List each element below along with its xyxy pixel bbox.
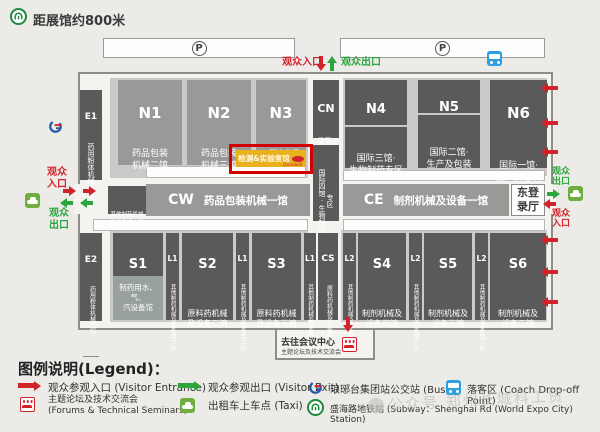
forum-icon: [342, 337, 357, 352]
hall-l2-name: 其他制药机械及设备馆三区: [412, 284, 418, 350]
expo-floorplan-map: 距展馆约800米 P P 观众入口 观众出口 E1 药用粉体机械一馆 E2 药用…: [0, 0, 600, 432]
bus-drop-off-icon: [487, 51, 502, 66]
hall-n5: N5 国际二馆· 工程自动化净化 配套实验室: [418, 80, 480, 113]
hall-cn-bio-zone: 国际四馆·生物制药专区: [313, 145, 339, 221]
entrance-arrow-icon: [541, 121, 558, 125]
hall-n3-id: N3: [256, 99, 306, 122]
hall-e1-id: E1: [80, 109, 102, 122]
hall-s4-name: 制剂机械及 设备四馆: [358, 309, 406, 330]
hall-s2-name: 原料药机械 及设备二馆: [182, 309, 233, 330]
exit-arrow-icon: [547, 192, 560, 196]
east-exit-label: 观众 出口: [552, 167, 570, 188]
legend-forum-icon: [20, 397, 35, 412]
hall-s4: S4 制剂机械及 设备四馆: [358, 233, 406, 320]
west-exit-label: 观众 出口: [49, 208, 69, 231]
hall-n6-id: N6: [490, 99, 547, 122]
hall-n4-id: N4: [345, 99, 407, 117]
legend-taxi-icon: [180, 398, 195, 413]
parking-icon: P: [192, 41, 207, 56]
hall-s3-id: S3: [252, 252, 301, 272]
entrance-arrow-icon: [541, 86, 558, 90]
hall-l1-id: L1: [236, 254, 249, 263]
corridor: [343, 219, 545, 231]
exit-arrow-icon: [60, 201, 73, 205]
exit-arrow-icon: [80, 201, 93, 205]
entrance-arrow-icon: [541, 270, 558, 274]
west-entrance-label: 观众 入口: [47, 167, 67, 190]
exhibitor-logo-text: Goodwill: [283, 163, 302, 168]
hall-n5-id: N5: [418, 99, 480, 115]
hall-s5: S5 制剂机械及 设备三馆: [424, 233, 472, 320]
hall-l2-name: 其他制药机械及设备馆三区: [478, 284, 484, 350]
top-exit-label: 观众出口: [341, 57, 381, 69]
hall-n4-bottom-name: 国际三馆· 生物制药专区: [345, 154, 407, 177]
hall-l1-name: 其他制药机械及设备馆二区: [239, 284, 245, 350]
entrance-arrow-icon: [319, 56, 323, 71]
hall-n2-id: N2: [187, 99, 251, 122]
hall-s1: S1 原料药机械 及设备一馆 制药用水、气、 汽设备馆: [113, 233, 163, 320]
conference-arrow-icon: [346, 317, 350, 332]
entrance-arrow-icon: [541, 300, 558, 304]
entrance-arrow-icon: [543, 202, 556, 206]
hall-cw-side-name: 其他制药机械 及设备馆一区: [108, 212, 146, 227]
hall-n5-bottom-name: 国际二馆· 生产及包装: [418, 148, 480, 171]
legend-coach-icon: [446, 380, 461, 395]
metro-icon: [10, 8, 27, 25]
hall-cw-id: CW: [168, 192, 194, 208]
hall-cw-side: 其他制药机械 及设备馆一区: [108, 186, 146, 214]
legend-bus-label: 琅琊台集团站公交站 (Bus): [330, 381, 449, 396]
hall-s3: S3 原料药机械 及设备三馆: [252, 233, 301, 320]
east-entrance-label: 观众 入口: [552, 209, 570, 230]
hall-s4-id: S4: [358, 252, 406, 272]
hall-cs: CS 原料药机械及设备四馆: [318, 233, 338, 320]
hall-l2: L2 其他制药机械及设备馆三区: [343, 233, 356, 320]
hall-l2-id: L2: [343, 254, 356, 263]
hall-l1-id: L1: [166, 254, 179, 263]
hall-e2-name: 药用粉体机械二馆: [88, 286, 95, 334]
hall-s1-id: S1: [113, 252, 163, 272]
hall-s3-name: 原料药机械 及设备三馆: [252, 309, 301, 330]
hall-n6: N6 国际一馆· 生产及包装: [490, 80, 547, 168]
legend-forum-label-en: (Forums & Technical Seminars): [48, 406, 187, 417]
hall-l2-id: L2: [475, 254, 488, 263]
hall-n4: N4 国际三馆· 工程自动化净化 配套实验室: [345, 80, 407, 125]
hall-n4-lower: 国际三馆· 生物制药专区: [345, 127, 407, 168]
legend-taxi-label: 出租车上车点 (Taxi): [208, 398, 303, 413]
entrance-arrow-icon: [541, 238, 558, 242]
hall-s2-id: S2: [182, 252, 233, 272]
hall-ce: CE 制剂机械及设备一馆: [343, 184, 509, 216]
hall-s5-name: 制剂机械及 设备三馆: [424, 309, 472, 330]
hall-n1-name: 药品包装 机械二馆: [118, 149, 182, 172]
legend-entrance-arrow-icon: [18, 383, 41, 388]
hall-l1: L1 其他制药机械及设备馆二区: [304, 233, 316, 320]
exit-arrow-icon: [330, 56, 334, 71]
entrance-arrow-icon: [83, 189, 96, 193]
legend-bus-stop-logo-icon: [308, 380, 323, 395]
hall-s6: S6 制剂机械及 设备二馆: [490, 233, 546, 320]
hall-s5-id: S5: [424, 252, 472, 272]
parking-strip-west: P: [103, 38, 295, 58]
parking-icon: P: [435, 41, 450, 56]
hall-s6-id: S6: [490, 252, 546, 272]
hall-l1: L1 其他制药机械及设备馆二区: [166, 233, 179, 320]
hall-e2-id: E2: [80, 252, 102, 265]
hall-n5-lower: 国际二馆· 生产及包装: [418, 115, 480, 168]
hall-cw-name: 药品包装机械一馆: [204, 193, 288, 208]
legend-exit-arrow-icon: [178, 383, 201, 388]
taxi-icon: [25, 193, 40, 208]
hall-cn-id: CN: [313, 99, 339, 115]
legend-subway-label: 盛海路地铁站 (Subway：Shenghai Rd (World Expo C…: [330, 402, 600, 425]
hall-l1-id: L1: [304, 254, 316, 263]
hall-s2: S2 原料药机械 及设备二馆: [182, 233, 233, 320]
hall-e1: E1 药用粉体机械一馆: [80, 90, 102, 180]
entrance-arrow-icon: [541, 150, 558, 154]
hall-s1-sub-name: 制药用水、气、 汽设备馆: [113, 276, 163, 320]
highlight-frame: [229, 144, 313, 174]
conference-subtitle: 主题论坛及技术交流会: [281, 347, 341, 356]
hall-cn: CN 国际四馆·工程自动化净化配套实验室: [313, 80, 339, 138]
hall-ce-id: CE: [364, 192, 384, 208]
legend-forum-label-cn: 主题论坛及技术交流会: [48, 395, 138, 406]
east-registration-hall: 东登 录厅: [511, 184, 545, 216]
hall-n1: N1 药品包装 机械二馆: [118, 80, 182, 165]
hall-cs-id: CS: [318, 254, 338, 264]
bus-stop-logo-icon: [48, 119, 63, 134]
hall-ce-name: 制剂机械及设备一馆: [394, 193, 489, 208]
parking-strip-east: P: [340, 38, 545, 58]
hall-s6-name: 制剂机械及 设备二馆: [490, 309, 546, 330]
hall-cw: CW 药品包装机械一馆: [146, 184, 310, 216]
metro-distance-note: 距展馆约800米: [33, 10, 125, 29]
hall-l1: L1 其他制药机械及设备馆二区: [236, 233, 249, 320]
hall-cn-bio-zone-name: 国际四馆·生物制药专区: [318, 166, 334, 236]
hall-l1-name: 其他制药机械及设备馆二区: [169, 284, 175, 350]
hall-n6-name: 国际一馆· 生产及包装: [490, 161, 547, 184]
hall-l2: L2 其他制药机械及设备馆三区: [475, 233, 488, 320]
hall-e2: E2 药用粉体机械二馆 饮片机械馆: [80, 233, 102, 321]
legend-subway-icon: [307, 399, 324, 416]
hall-n1-id: N1: [118, 99, 182, 122]
hall-l2-id: L2: [409, 254, 422, 263]
hall-l2: L2 其他制药机械及设备馆三区: [409, 233, 422, 320]
entrance-arrow-icon: [63, 189, 76, 193]
taxi-icon: [568, 186, 583, 201]
legend-title: 图例说明(Legend)：: [18, 358, 169, 379]
